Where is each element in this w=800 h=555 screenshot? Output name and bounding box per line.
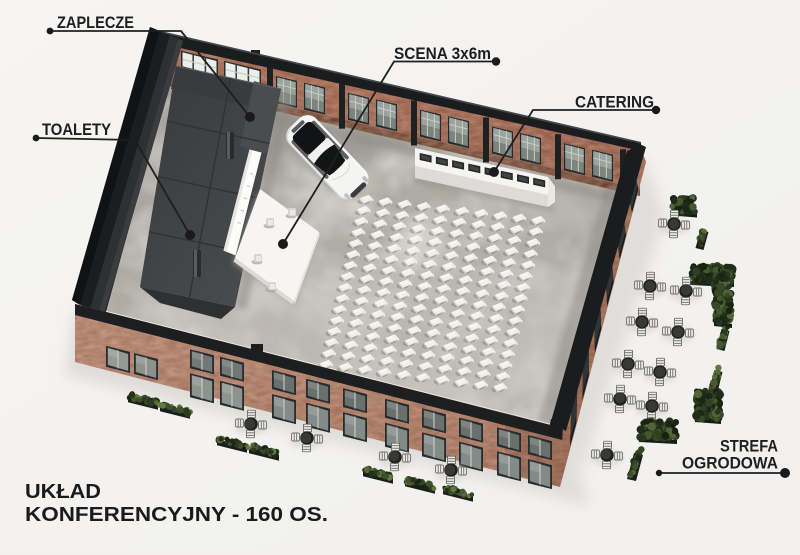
svg-text:CATERING: CATERING xyxy=(575,93,654,112)
svg-text:ZAPLECZE: ZAPLECZE xyxy=(57,13,134,32)
svg-text:TOALETY: TOALETY xyxy=(42,120,112,139)
svg-text:UKŁAD: UKŁAD xyxy=(25,481,101,503)
svg-text:SCENA 3x6m: SCENA 3x6m xyxy=(394,44,491,63)
svg-text:KONFERENCYJNY - 160 OS.: KONFERENCYJNY - 160 OS. xyxy=(25,504,328,526)
svg-text:OGRODOWA: OGRODOWA xyxy=(682,454,778,473)
